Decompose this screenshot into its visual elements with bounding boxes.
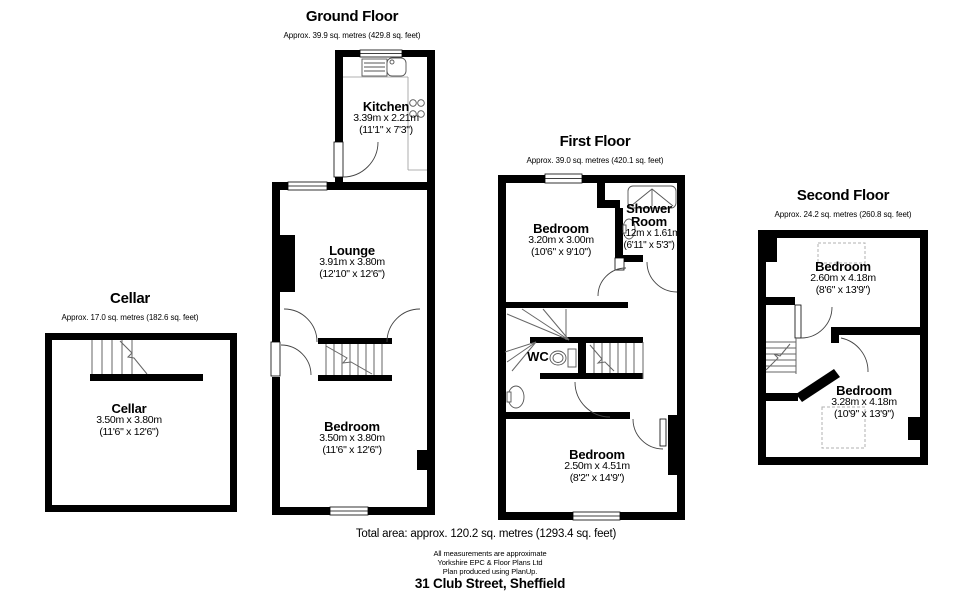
gf-bedroom-chimney-breast [417, 450, 427, 470]
lounge-chimney-breast [280, 235, 295, 292]
shower-room-door [647, 262, 677, 292]
ground-floor-area: Approx. 39.9 sq. metres (429.8 sq. feet) [284, 32, 421, 40]
kitchen-back-door [334, 142, 378, 177]
gf-bedroom-label: Bedroom 3.50m x 3.80m (11'6" x 12'6") [319, 420, 385, 456]
total-area-text: Total area: approx. 120.2 sq. metres (12… [356, 529, 616, 541]
ff-hall-sink [507, 386, 524, 408]
cellar-area: Approx. 17.0 sq. metres (182.6 sq. feet) [62, 314, 199, 322]
disclaimer-line-2: Yorkshire EPC & Floor Plans Ltd [437, 558, 542, 567]
wc-label: WC [527, 350, 549, 363]
ff-front-window [545, 174, 582, 183]
cellar-stairs [92, 340, 147, 374]
ff-bedroom-chimney-breast [668, 415, 677, 475]
gf-stairs [326, 344, 382, 375]
sf-bedroom-back-label: Bedroom 3.28m x 4.18m (10'9" x 13'9") [831, 384, 897, 420]
ground-floor-title: Ground Floor [306, 9, 398, 24]
first-floor-area: Approx. 39.0 sq. metres (420.1 sq. feet) [527, 157, 664, 165]
front-door [271, 342, 311, 376]
cellar-title: Cellar [110, 291, 150, 306]
sf-wall-notch [908, 417, 928, 440]
first-floor-title: First Floor [560, 134, 631, 149]
floorplan-page: Cellar Approx. 17.0 sq. metres (182.6 sq… [0, 0, 980, 594]
kitchen-window [360, 50, 402, 57]
lounge-window [288, 182, 327, 190]
ff-back-window [573, 512, 620, 520]
ff-bedroom-back-label: Bedroom 2.50m x 4.51m (8'2" x 14'9") [564, 448, 630, 484]
property-address: 31 Club Street, Sheffield [415, 577, 565, 591]
kitchen-sink [362, 58, 406, 76]
sf-stairs [766, 338, 796, 374]
disclaimer-line-1: All measurements are approximate [433, 549, 546, 558]
lounge-door-left [284, 309, 317, 342]
ff-bedroom-front-label: Bedroom 3.20m x 3.00m (10'6" x 9'10") [528, 222, 594, 258]
ff-back-bedroom-door [633, 419, 666, 449]
second-floor-title: Second Floor [797, 188, 889, 203]
sf-bedroom-back-door [841, 338, 868, 372]
cellar-room-label: Cellar 3.50m x 3.80m (11'6" x 12'6") [96, 402, 162, 438]
wc-toilet [550, 349, 576, 367]
lounge-door-right [387, 309, 420, 342]
sf-bedroom-front-label: Bedroom 2.60m x 4.18m (8'6" x 13'9") [810, 260, 876, 296]
sf-chimney-breast [758, 230, 777, 262]
cellar-understair-wall [90, 374, 203, 381]
second-floor-area: Approx. 24.2 sq. metres (260.8 sq. feet) [775, 211, 912, 219]
kitchen-label: Kitchen 3.39m x 2.21m (11'1" x 7'3") [353, 100, 419, 136]
ff-bedroom-door [598, 258, 626, 296]
shower-room-label: Shower Room 2.12m x 1.61m (6'11" x 5'3") [618, 203, 680, 251]
lounge-label: Lounge 3.91m x 3.80m (12'10" x 12'6") [319, 244, 385, 280]
gf-bedroom-window [330, 507, 368, 515]
sf-bedroom-front-door [795, 305, 832, 338]
disclaimer-line-3: Plan produced using PlanUp. [443, 567, 537, 576]
ff-hall-door [575, 382, 610, 417]
